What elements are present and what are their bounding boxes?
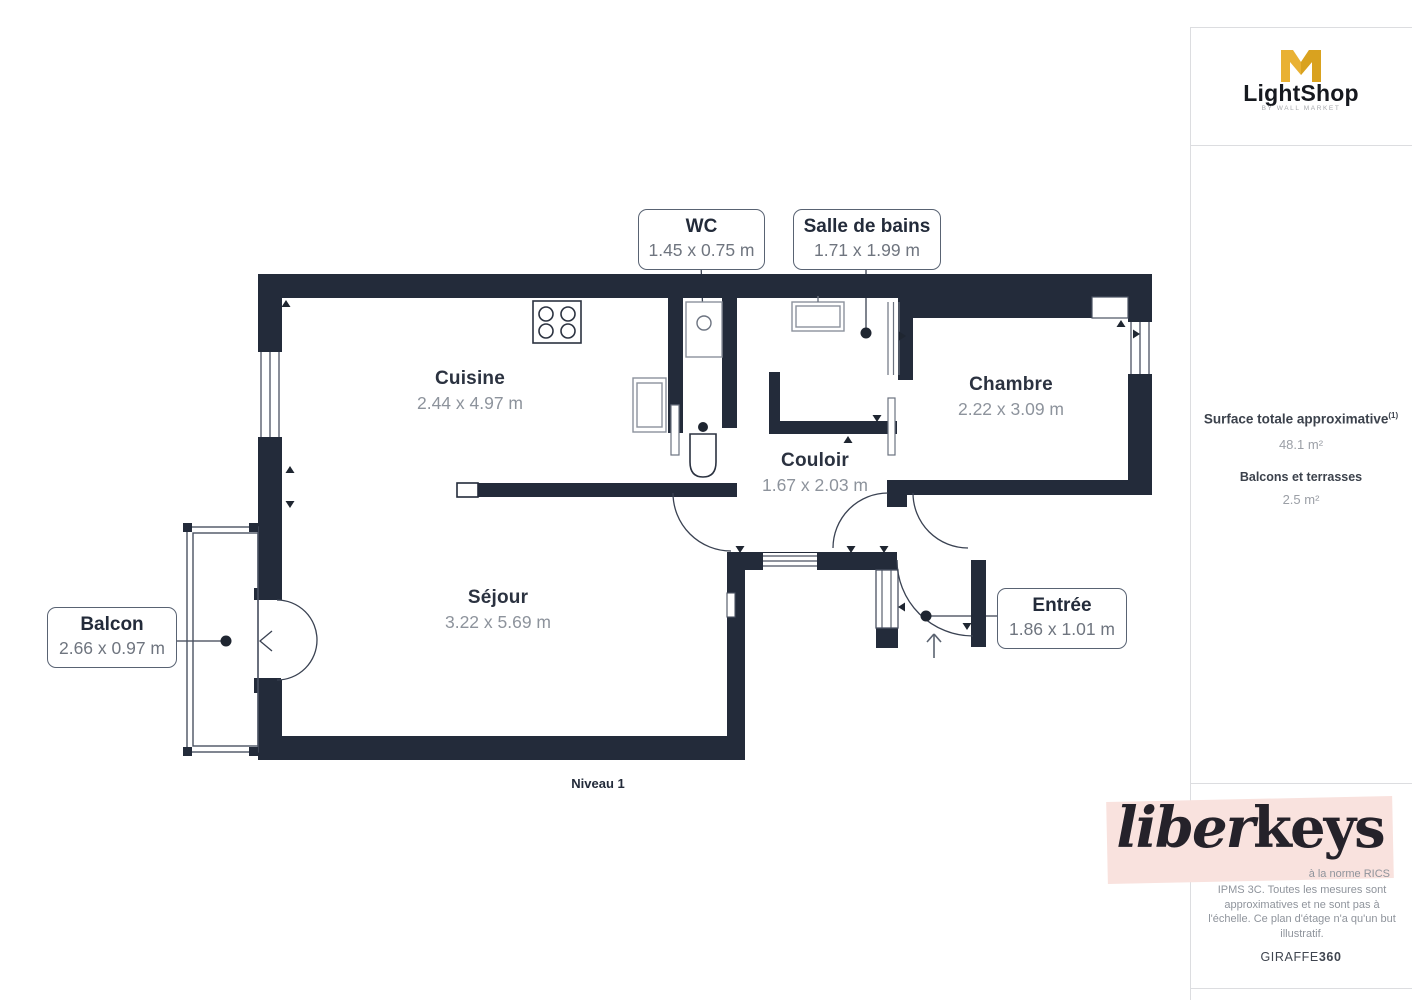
room-label-chambre: Chambre 2.22 x 3.09 m bbox=[958, 374, 1064, 420]
surface-total-value: 48.1 m² bbox=[1192, 437, 1410, 452]
callout-salle-de-bains: Salle de bains 1.71 x 1.99 m bbox=[793, 209, 941, 270]
door-arcs bbox=[260, 493, 973, 680]
disclaimer-line: approximatives et ne sont pas à bbox=[1196, 898, 1408, 913]
callout-dims: 1.86 x 1.01 m bbox=[1002, 619, 1122, 640]
giraffe-360-text: 360 bbox=[1319, 950, 1342, 964]
disclaimer-line: IPMS 3C. Toutes les mesures sont bbox=[1196, 883, 1408, 898]
toilet-icon bbox=[690, 422, 716, 477]
liberkeys-script-part: liber bbox=[1116, 795, 1253, 861]
callout-title: WC bbox=[643, 216, 760, 238]
stove-icon bbox=[533, 301, 581, 343]
room-label-sejour: Séjour 3.22 x 5.69 m bbox=[445, 587, 551, 633]
callout-dims: 1.71 x 1.99 m bbox=[798, 240, 936, 261]
room-name: Séjour bbox=[445, 587, 551, 609]
room-dims: 2.44 x 4.97 m bbox=[417, 393, 523, 414]
room-name: Chambre bbox=[958, 374, 1064, 396]
surface-footnote-marker: (1) bbox=[1388, 411, 1398, 420]
callout-dims: 2.66 x 0.97 m bbox=[52, 638, 172, 659]
kitchen-sink-icon bbox=[633, 378, 666, 432]
sidebar-mid-rule bbox=[1190, 783, 1412, 784]
disclaimer-fragment: à la norme RICS bbox=[1255, 868, 1390, 880]
entry-arrow-icon bbox=[927, 634, 941, 658]
brand-tagline: BY WALL MARKET bbox=[1192, 105, 1410, 112]
surface-total-text: Surface totale approximative bbox=[1204, 412, 1389, 427]
callout-title: Salle de bains bbox=[798, 216, 936, 238]
balconies-value: 2.5 m² bbox=[1192, 492, 1410, 507]
callout-title: Entrée bbox=[1002, 595, 1122, 617]
room-name: Couloir bbox=[762, 450, 868, 472]
bath-sink-icon bbox=[792, 296, 844, 331]
disclaimer-text: IPMS 3C. Toutes les mesures sont approxi… bbox=[1196, 883, 1408, 941]
giraffe360-credit: GIRAFFE360 bbox=[1192, 950, 1410, 964]
room-dims: 2.22 x 3.09 m bbox=[958, 399, 1064, 420]
level-label: Niveau 1 bbox=[571, 776, 624, 791]
balconies-label: Balcons et terrasses bbox=[1192, 470, 1410, 484]
giraffe-text: GIRAFFE bbox=[1260, 950, 1318, 964]
wc-basin-icon bbox=[686, 302, 722, 357]
floorplan-page: Cuisine 2.44 x 4.97 m Séjour 3.22 x 5.69… bbox=[0, 0, 1412, 1000]
shower-glass-icon bbox=[888, 302, 899, 375]
room-dims: 1.67 x 2.03 m bbox=[762, 475, 868, 496]
callout-entree: Entrée 1.86 x 1.01 m bbox=[997, 588, 1127, 649]
surface-total-label: Surface totale approximative(1) bbox=[1192, 411, 1410, 427]
room-dims: 3.22 x 5.69 m bbox=[445, 612, 551, 633]
disclaimer-line: illustratif. bbox=[1196, 927, 1408, 942]
leader-lines bbox=[176, 264, 997, 641]
callout-balcon: Balcon 2.66 x 0.97 m bbox=[47, 607, 177, 668]
callout-dims: 1.45 x 0.75 m bbox=[643, 240, 760, 261]
callout-wc: WC 1.45 x 0.75 m bbox=[638, 209, 765, 270]
balcony-corner-ticks bbox=[183, 523, 258, 756]
disclaimer-line: l'échelle. Ce plan d'étage n'a qu'un but bbox=[1196, 912, 1408, 927]
room-label-cuisine: Cuisine 2.44 x 4.97 m bbox=[417, 368, 523, 414]
callout-title: Balcon bbox=[52, 614, 172, 636]
liberkeys-serif-part: keys bbox=[1253, 795, 1384, 861]
sidebar-bottom-rule bbox=[1190, 988, 1412, 989]
sidebar-brand-rule bbox=[1190, 145, 1412, 146]
liberkeys-logo: liberkeys bbox=[1104, 795, 1396, 861]
room-name: Cuisine bbox=[417, 368, 523, 390]
room-label-couloir: Couloir 1.67 x 2.03 m bbox=[762, 450, 868, 496]
sidebar-top-rule bbox=[1190, 27, 1412, 28]
brand-name: LightShop bbox=[1192, 80, 1410, 107]
